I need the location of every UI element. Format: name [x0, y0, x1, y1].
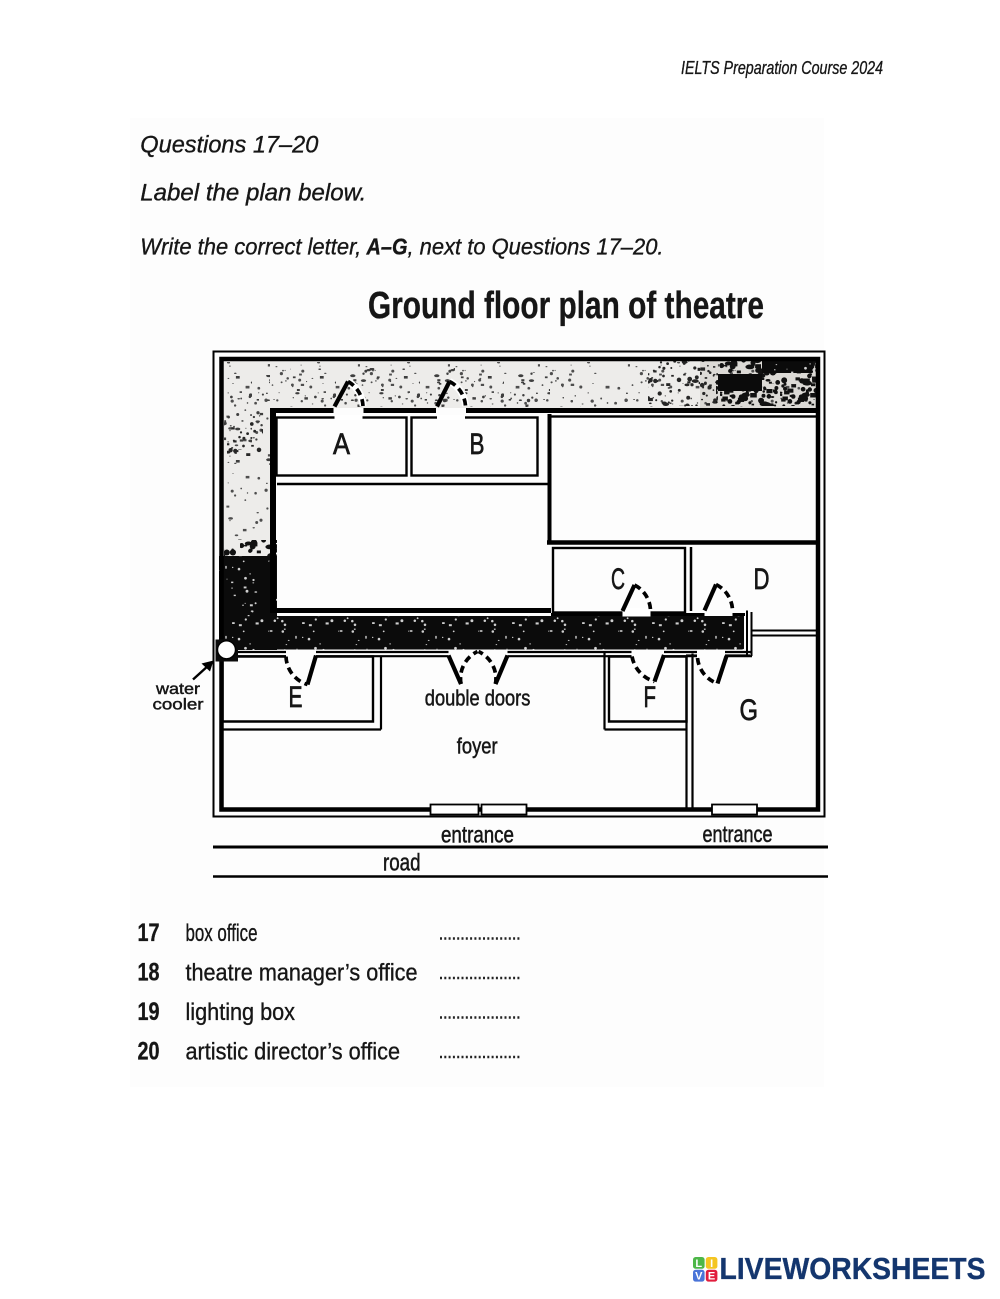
svg-text:19: 19	[138, 998, 160, 1026]
svg-text:E: E	[708, 1271, 715, 1283]
svg-text:entrance: entrance	[703, 821, 773, 847]
svg-text:box office: box office	[186, 920, 258, 947]
svg-text:Questions 17–20: Questions 17–20	[140, 131, 319, 158]
svg-text:20: 20	[138, 1038, 160, 1066]
svg-text:D: D	[754, 563, 770, 596]
svg-text:, next to Questions 17–20.: , next to Questions 17–20.	[408, 233, 664, 259]
svg-text:double doors: double doors	[425, 686, 531, 711]
svg-text:cooler: cooler	[153, 697, 205, 714]
svg-text:F: F	[644, 681, 657, 714]
svg-text:E: E	[289, 681, 303, 714]
svg-text:artistic director’s office: artistic director’s office	[186, 1039, 401, 1066]
svg-text:lighting box: lighting box	[186, 999, 296, 1026]
svg-text:Write the correct letter,: Write the correct letter,	[140, 233, 361, 259]
svg-text:A: A	[333, 428, 350, 461]
svg-text:Ground floor plan of theatre: Ground floor plan of theatre	[368, 285, 764, 327]
svg-text:V: V	[695, 1271, 703, 1283]
svg-text:entrance: entrance	[441, 822, 514, 848]
svg-text:Label the plan below.: Label the plan below.	[140, 179, 366, 206]
svg-text:water: water	[155, 681, 201, 698]
svg-text:road: road	[383, 850, 421, 877]
svg-text:foyer: foyer	[457, 734, 498, 759]
svg-text:C: C	[611, 563, 625, 596]
svg-text:I: I	[710, 1258, 713, 1270]
svg-text:theatre manager’s office: theatre manager’s office	[186, 960, 418, 987]
svg-text:L: L	[695, 1258, 702, 1270]
svg-text:LIVEWORKSHEETS: LIVEWORKSHEETS	[720, 1252, 986, 1286]
svg-text:A–G: A–G	[366, 233, 408, 259]
svg-text:18: 18	[138, 959, 160, 987]
svg-text:IELTS Preparation Course 2024: IELTS Preparation Course 2024	[681, 57, 883, 78]
svg-text:G: G	[740, 694, 759, 727]
svg-text:B: B	[470, 428, 485, 461]
svg-text:17: 17	[138, 919, 160, 947]
